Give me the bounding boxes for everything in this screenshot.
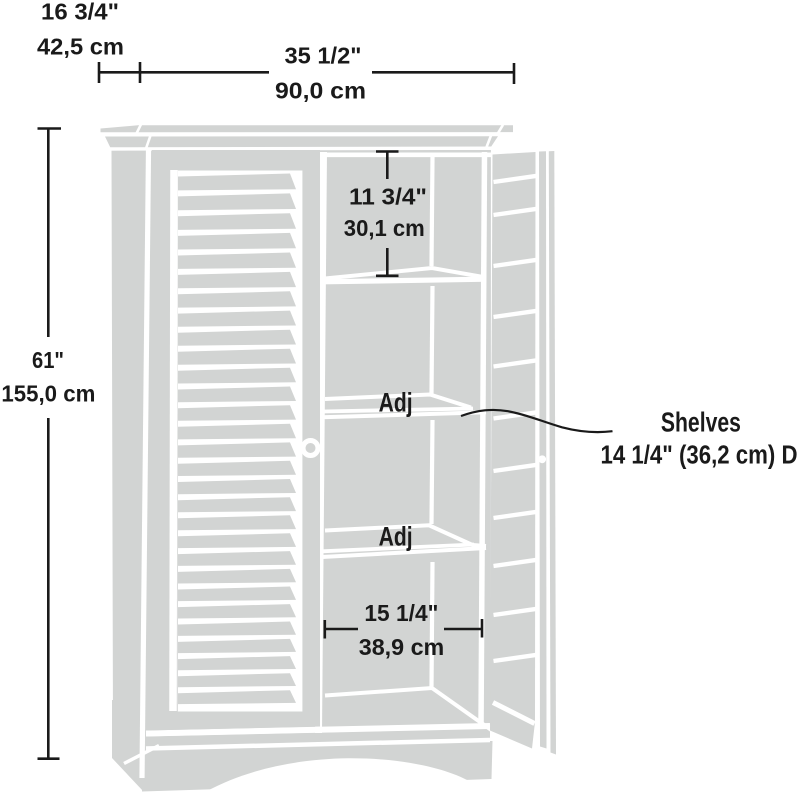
svg-text:Shelves: Shelves	[661, 406, 741, 437]
svg-text:30,1 cm: 30,1 cm	[344, 215, 425, 241]
svg-text:155,0 cm: 155,0 cm	[1, 381, 95, 407]
svg-text:Adj: Adj	[379, 522, 413, 552]
svg-text:38,9 cm: 38,9 cm	[359, 634, 445, 660]
svg-text:14 1/4" (36,2 cm) D: 14 1/4" (36,2 cm) D	[601, 442, 798, 470]
svg-text:Adj: Adj	[379, 388, 413, 418]
svg-text:61": 61"	[32, 347, 64, 373]
svg-text:35 1/2": 35 1/2"	[285, 43, 362, 69]
svg-text:16 3/4": 16 3/4"	[41, 0, 119, 25]
svg-text:42,5 cm: 42,5 cm	[37, 34, 124, 60]
svg-text:11 3/4": 11 3/4"	[349, 183, 427, 209]
svg-text:15 1/4": 15 1/4"	[364, 600, 438, 626]
svg-text:90,0 cm: 90,0 cm	[275, 78, 366, 104]
